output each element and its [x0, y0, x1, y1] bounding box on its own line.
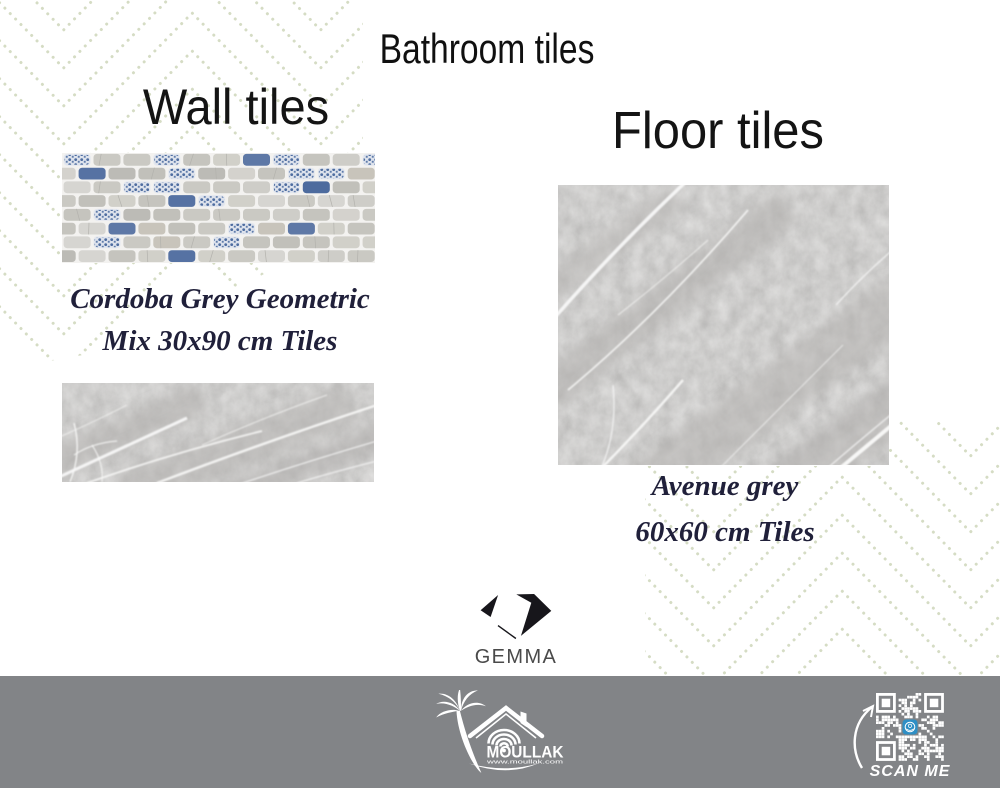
svg-text:www.moullak.com: www.moullak.com: [487, 760, 563, 766]
svg-text:GEMMA: GEMMA: [475, 646, 558, 668]
